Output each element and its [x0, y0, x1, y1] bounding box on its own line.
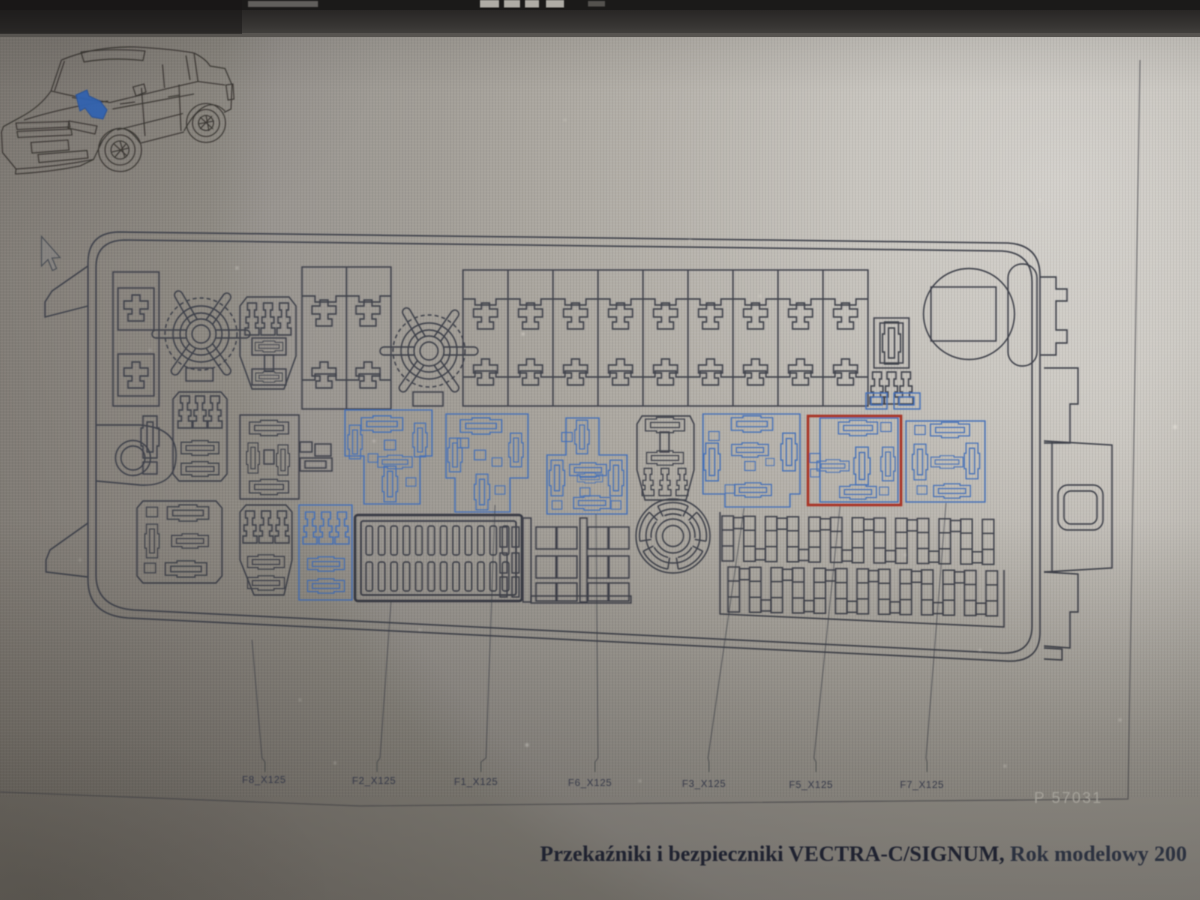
svg-text:P 57031: P 57031: [1034, 790, 1103, 807]
